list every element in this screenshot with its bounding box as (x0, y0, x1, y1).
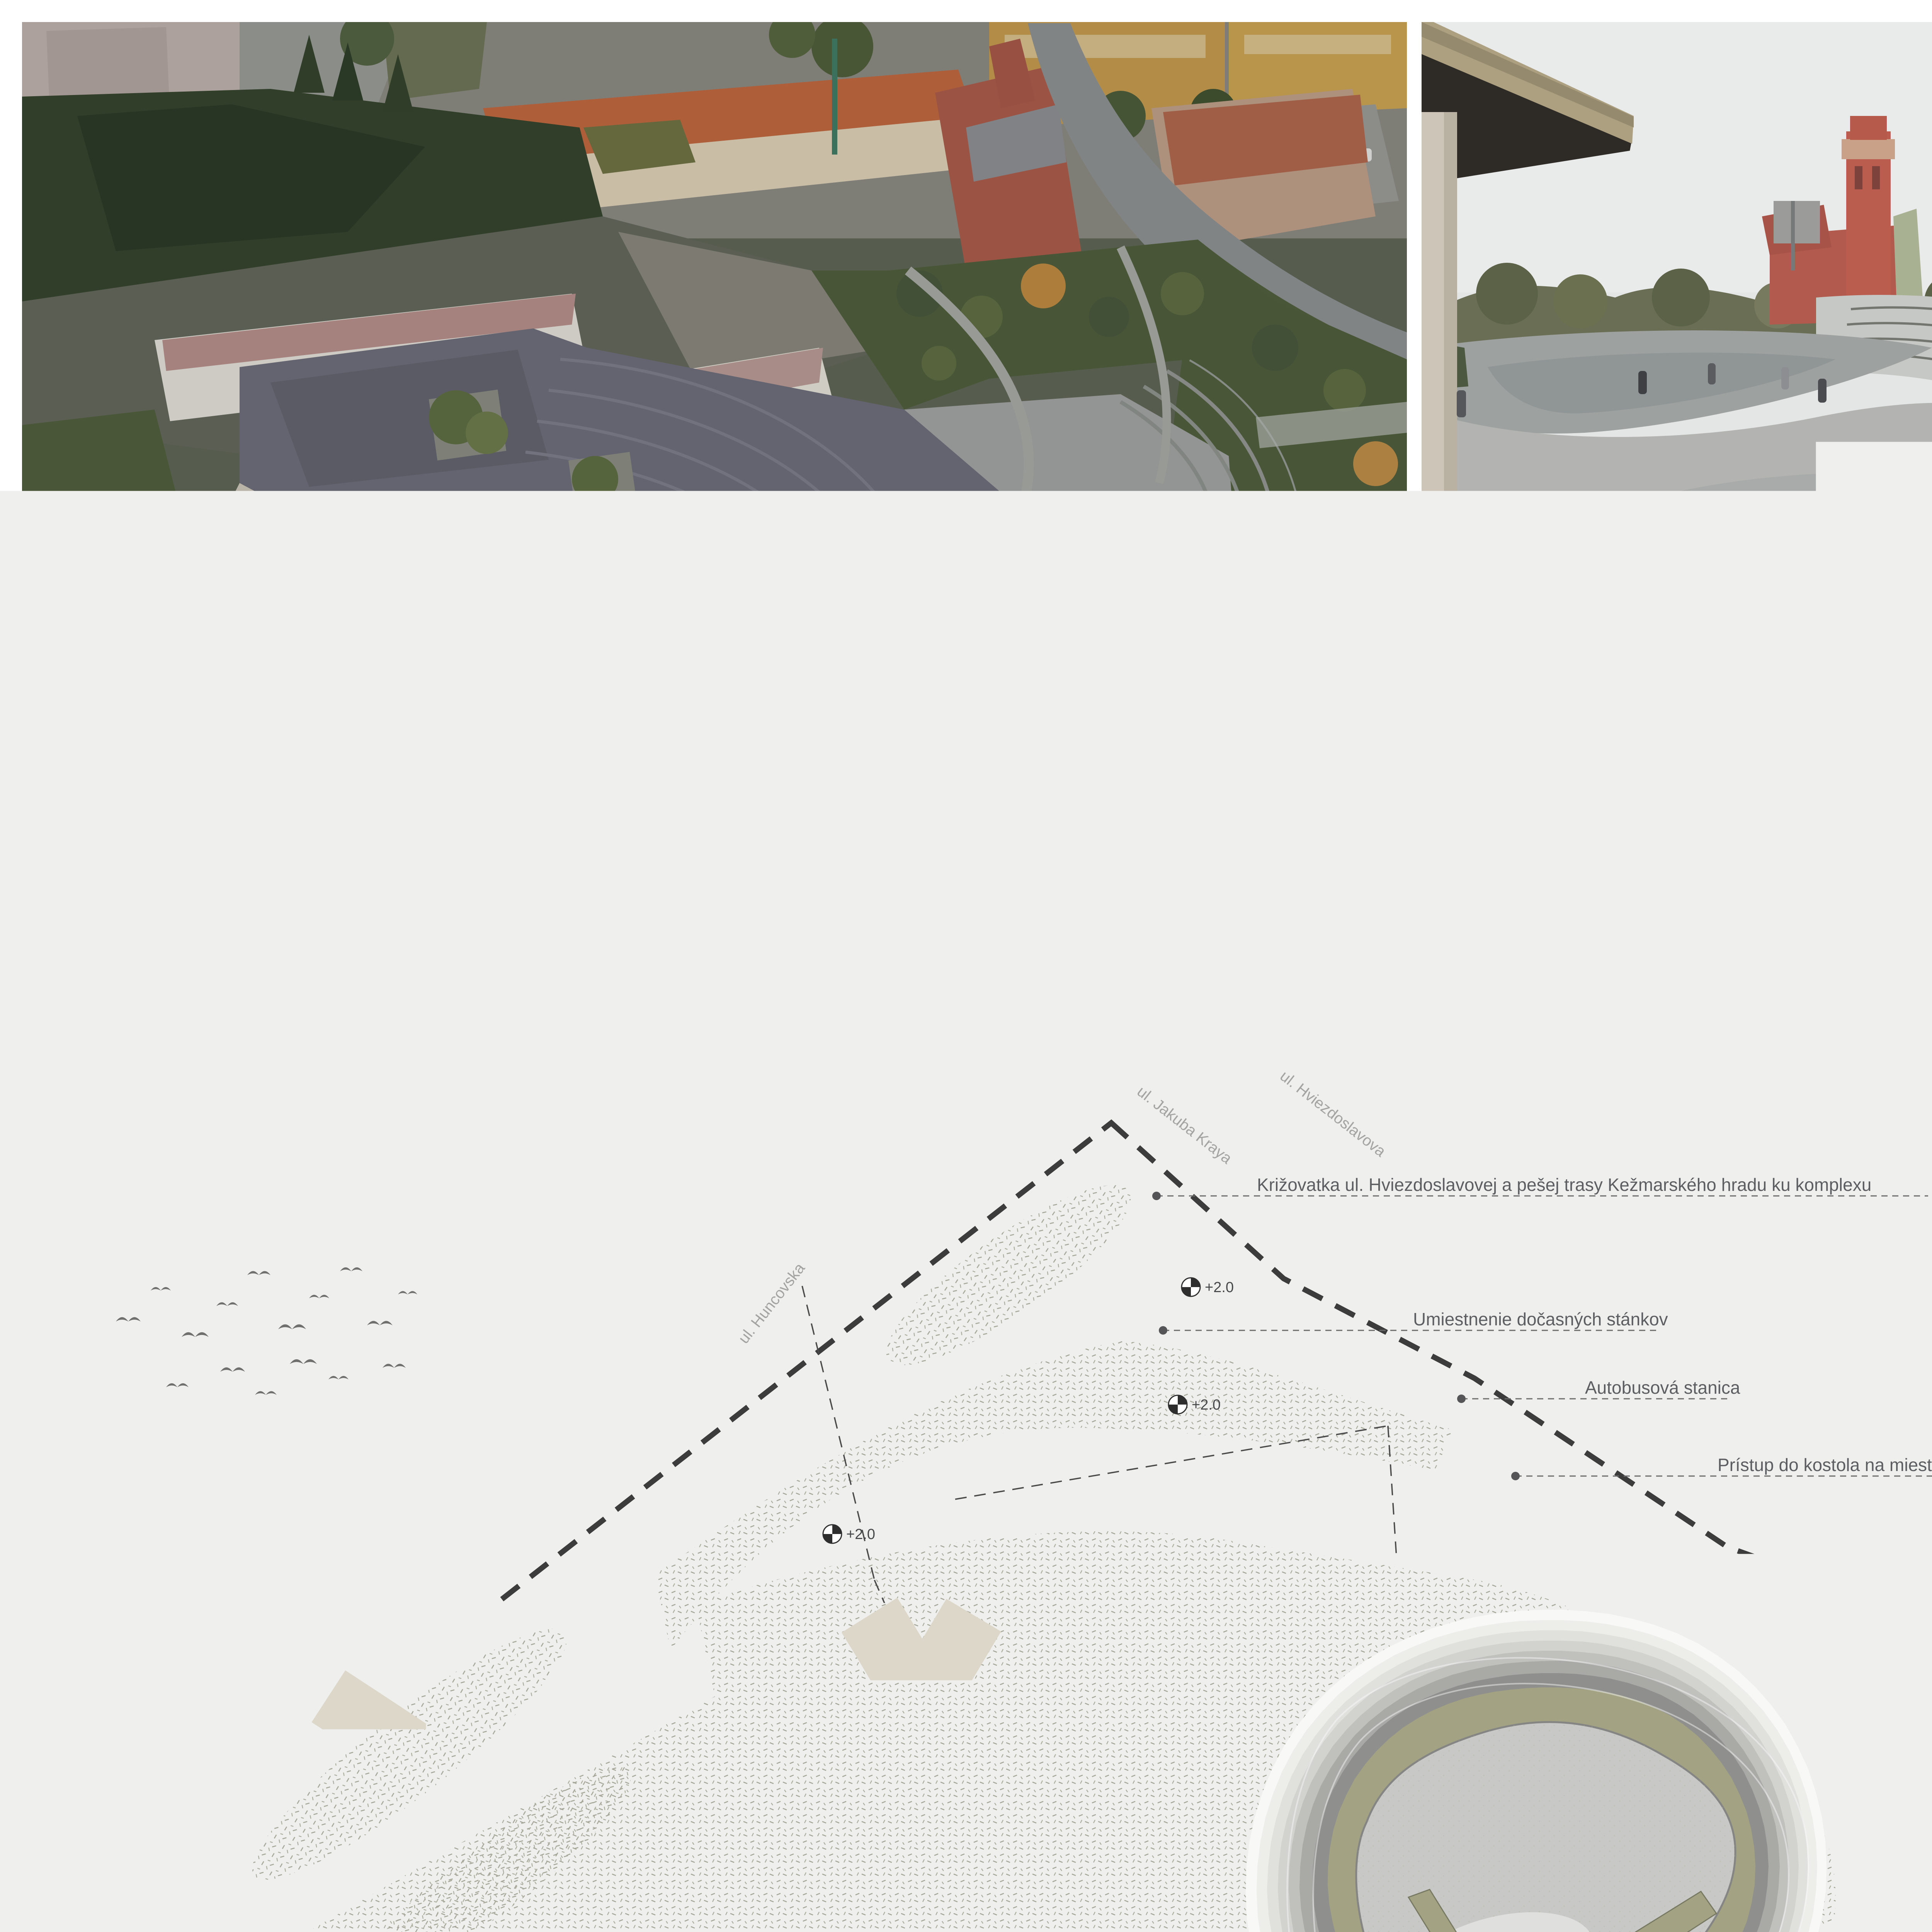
svg-text:+1.0: +1.0 (1069, 1884, 1098, 1900)
svg-text:0.0: 0.0 (1923, 1818, 1932, 1835)
svg-text:+2.0: +2.0 (846, 1526, 875, 1543)
svg-text:Prístup do kostola na mieste: Prístup do kostola na mieste (1718, 1455, 1932, 1475)
svg-text:+2.0: +2.0 (1192, 1397, 1221, 1413)
svg-text:+1.0: +1.0 (1013, 1752, 1042, 1769)
svg-text:Autobusová stanica: Autobusová stanica (1585, 1378, 1740, 1398)
svg-text:Prístupová cesta na ul. Hviezd: Prístupová cesta na ul. Hviezdoslavovej (79, 1646, 393, 1667)
svg-text:+2.0: +2.0 (864, 1664, 893, 1680)
svg-text:0.0: 0.0 (1545, 1832, 1565, 1848)
svg-text:+1.5: +1.5 (965, 1698, 994, 1714)
svg-text:+2.0: +2.0 (1205, 1279, 1234, 1296)
svg-text:+0.5: +0.5 (1132, 1775, 1161, 1791)
svg-text:+1.5: +1.5 (980, 1795, 1009, 1811)
svg-text:Umiestnenie dočasných stánkov: Umiestnenie dočasných stánkov (1413, 1309, 1668, 1329)
svg-text:+0.5: +0.5 (1134, 1838, 1163, 1854)
svg-text:Križovatka ul. Hviezdoslavovej: Križovatka ul. Hviezdoslavovej a pešej t… (1257, 1175, 1871, 1195)
